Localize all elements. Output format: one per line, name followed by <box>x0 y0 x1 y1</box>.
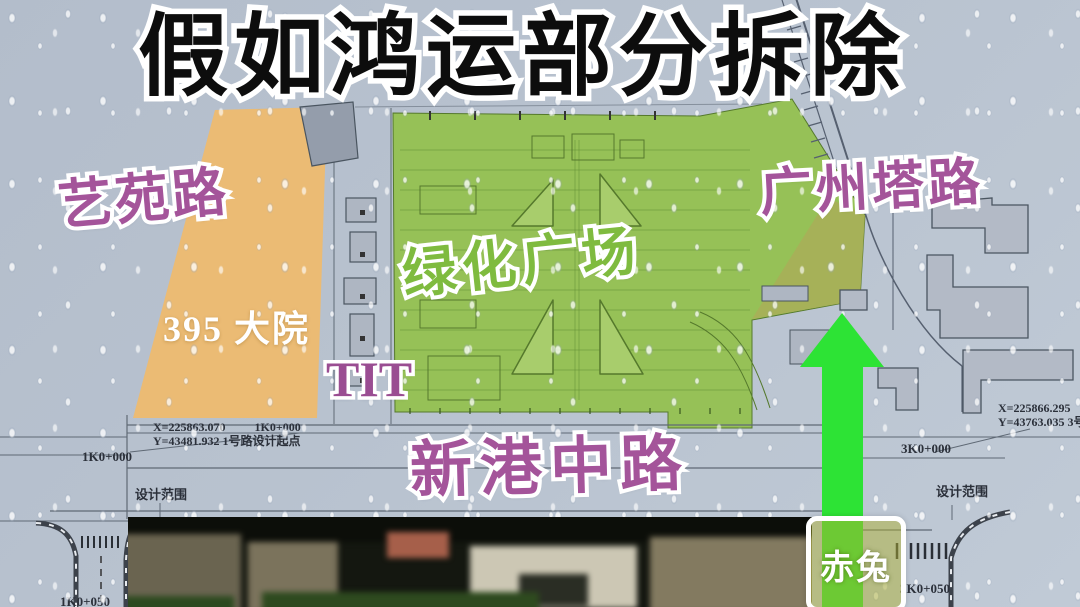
label-395-compound-text: 395 大院 <box>163 309 310 349</box>
station-3k0: 3K0+000 <box>901 441 951 457</box>
station-3k0-050: 3K0+050 <box>900 581 950 597</box>
label-tit-text: TIT <box>326 351 412 407</box>
start-y-coord: Y=43481.932 1号路设计起点 <box>153 434 301 448</box>
end-y-coord: Y=43763.035 3号 <box>998 415 1080 429</box>
road3-end-annotation: X=225866.295 Y=43763.035 3号 <box>998 401 1080 430</box>
page-title: 假如鸿运部分拆除假如鸿运部分拆除 <box>138 6 906 109</box>
label-xingang-middle-road-text: 新港中路 <box>409 429 691 505</box>
parcel-395-area <box>133 107 327 418</box>
video-frame: X=225863.070 1K0+000 Y=43481.932 1号路设计起点… <box>0 0 1080 607</box>
street-photo-buildings <box>128 517 812 607</box>
page-title-text: 假如鸿运部分拆除 <box>138 7 906 107</box>
end-x-coord: X=225866.295 <box>998 401 1071 415</box>
label-guangzhou-tower-road: 广州塔路广州塔路 <box>759 152 986 224</box>
street-photo-strip <box>128 517 812 607</box>
label-guangzhou-tower-road-text: 广州塔路 <box>759 153 986 223</box>
watermark-badge-label: 赤兔 <box>820 540 892 589</box>
design-scope-right: 设计范围 <box>936 484 988 500</box>
watermark-badge: 赤兔 <box>806 516 906 607</box>
design-scope-left: 设计范围 <box>135 487 187 503</box>
start-station: 1K0+000 <box>255 420 301 434</box>
start-x-coord: X=225863.070 <box>153 420 226 434</box>
label-xingang-middle-road: 新港中路新港中路 <box>409 428 691 506</box>
road1-start-annotation: X=225863.070 1K0+000 Y=43481.932 1号路设计起点 <box>153 420 301 449</box>
east-buildings <box>840 198 1073 413</box>
label-395-compound: 395 大院 <box>163 300 310 352</box>
station-1k0: 1K0+000 <box>82 449 132 465</box>
station-1k0-050: 1K0+050 <box>60 594 110 607</box>
label-tit: TITTIT <box>326 350 412 408</box>
